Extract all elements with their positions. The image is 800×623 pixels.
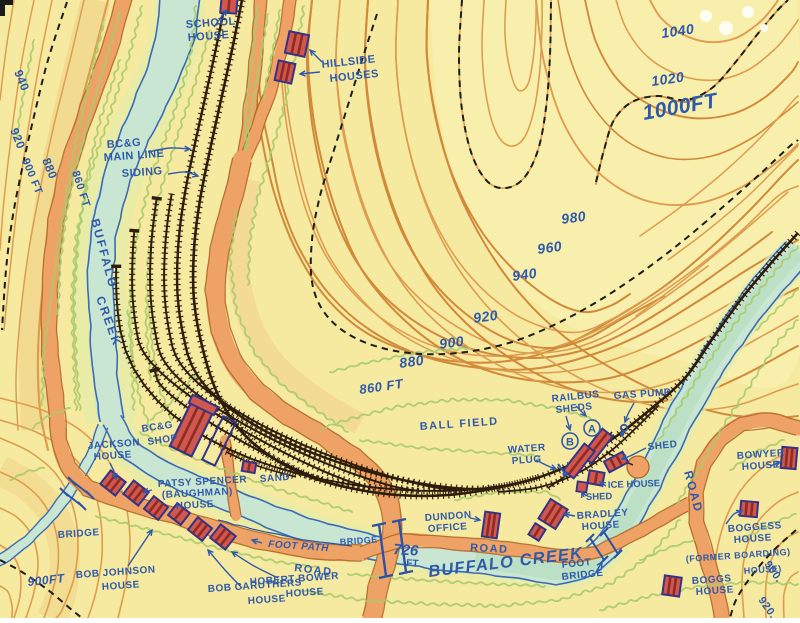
svg-text:FT: FT xyxy=(406,558,419,570)
svg-text:A: A xyxy=(588,424,596,436)
svg-text:ICE HOUSE: ICE HOUSE xyxy=(608,478,661,491)
svg-text:940: 940 xyxy=(511,265,538,284)
svg-text:980: 980 xyxy=(560,208,587,227)
svg-text:SHED: SHED xyxy=(586,491,613,503)
svg-text:HOUSE: HOUSE xyxy=(176,499,215,512)
svg-text:920: 920 xyxy=(472,307,499,326)
svg-text:ROAD: ROAD xyxy=(470,542,509,556)
svg-text:726: 726 xyxy=(393,541,420,560)
svg-text:900: 900 xyxy=(438,333,465,352)
svg-text:SAND: SAND xyxy=(259,472,290,485)
svg-text:880: 880 xyxy=(398,352,425,371)
svg-text:960: 960 xyxy=(536,238,563,257)
svg-text:B: B xyxy=(566,437,574,449)
